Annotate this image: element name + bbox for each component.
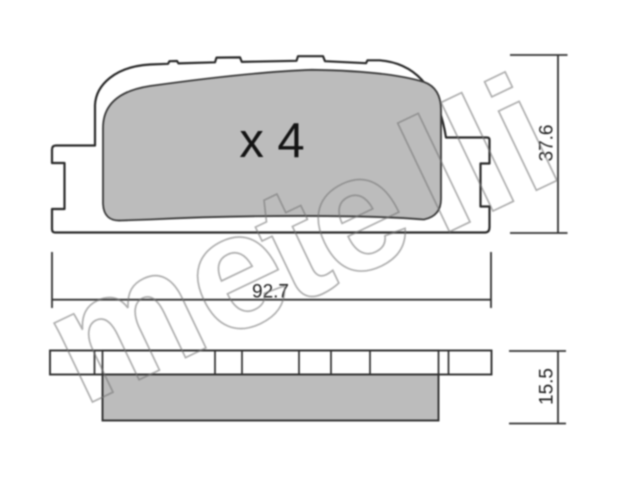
svg-text:15.5: 15.5 [537, 368, 558, 405]
